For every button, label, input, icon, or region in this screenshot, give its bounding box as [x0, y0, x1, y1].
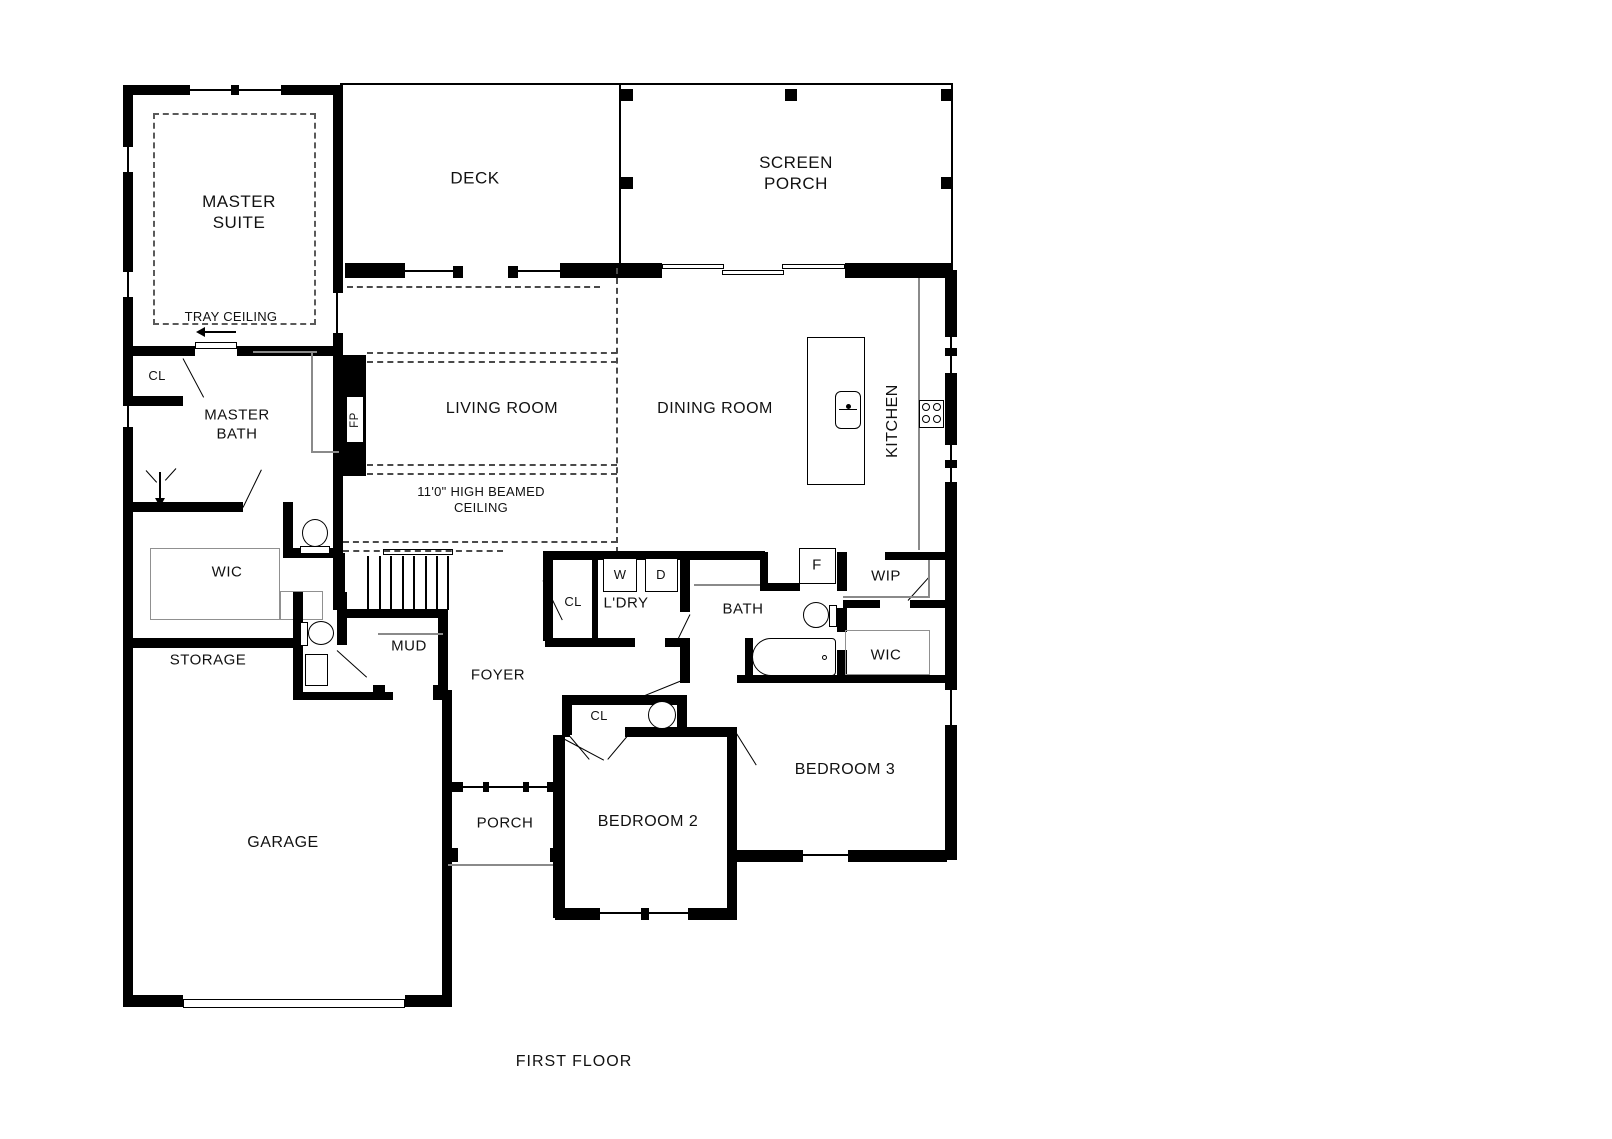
wall	[343, 609, 447, 618]
wall	[945, 482, 957, 612]
wall	[945, 270, 957, 337]
stair-tread	[379, 556, 381, 610]
tub-drain-icon	[822, 655, 827, 660]
room-label-closet-hall: CL	[564, 594, 581, 610]
door-leaf	[565, 739, 604, 761]
beam-ceiling-dashed	[367, 473, 617, 475]
window	[127, 147, 129, 172]
screen-porch-outline	[621, 83, 953, 85]
pantry-shelf	[928, 560, 930, 598]
deck-post-icon	[508, 266, 518, 278]
wall	[333, 85, 343, 293]
window	[190, 89, 231, 91]
room-label-storage: STORAGE	[170, 652, 247, 671]
wall	[133, 502, 243, 512]
room-label-master-suite: MASTER SUITE	[179, 191, 299, 234]
stair-tread	[402, 556, 404, 610]
closet-door-leaf	[607, 736, 627, 760]
sidelight	[463, 786, 483, 788]
toilet-tank-icon	[829, 605, 837, 627]
door-arrow-icon	[204, 331, 236, 333]
fireplace-label: FP	[348, 412, 362, 428]
stair-tread	[367, 556, 369, 610]
room-label-laundry: L'DRY	[603, 595, 648, 614]
shower-line	[146, 470, 157, 483]
window	[950, 690, 952, 725]
wall	[345, 263, 405, 278]
deck-outline	[340, 83, 621, 85]
porch-step	[448, 864, 563, 866]
porch-post-icon	[621, 177, 633, 189]
room-label-master-bath: MASTER BATH	[187, 406, 287, 444]
room-label-closet-master: CL	[148, 368, 165, 384]
wall	[760, 552, 768, 591]
garage-door	[183, 999, 405, 1008]
wall	[231, 85, 239, 95]
wall	[553, 735, 565, 918]
page-title: FIRST FLOOR	[516, 1052, 633, 1072]
appliance-label-dryer: D	[656, 567, 666, 583]
wall	[727, 727, 737, 918]
burner-icon	[922, 415, 930, 423]
door-leaf	[337, 650, 367, 678]
sliding-door-panel	[782, 264, 845, 269]
burner-icon	[933, 415, 941, 423]
wall	[433, 685, 448, 700]
stair-tread	[436, 556, 438, 610]
room-label-screen-porch: SCREEN PORCH	[736, 152, 856, 195]
wall	[945, 612, 957, 690]
room-label-deck: DECK	[450, 167, 499, 188]
wall	[592, 558, 598, 641]
annotation-beamed-ceiling: 11'0" HIGH BEAMED CEILING	[396, 484, 566, 517]
wall	[680, 645, 690, 683]
wall	[837, 552, 847, 591]
door-leaf	[734, 729, 757, 765]
pantry-shelf	[843, 596, 930, 598]
ceiling-break-dashed	[616, 268, 618, 553]
shower-arrow-icon	[159, 472, 161, 498]
shower-arrow-head-icon	[155, 498, 165, 507]
mud-bench	[378, 633, 443, 635]
room-label-wic-master: WIC	[212, 564, 243, 583]
porch-post-icon	[444, 848, 458, 862]
burner-icon	[933, 403, 941, 411]
porch-post-icon	[621, 89, 633, 101]
toilet-bowl-icon	[803, 602, 829, 628]
shower-line	[165, 468, 176, 481]
window	[239, 89, 281, 91]
porch-post-icon	[785, 89, 797, 101]
wall	[123, 427, 133, 640]
front-door	[489, 786, 523, 788]
wall	[438, 609, 448, 690]
room-label-wic-hall: WIC	[871, 647, 902, 666]
wall	[123, 346, 195, 356]
room-label-bath: BATH	[723, 601, 764, 620]
window	[950, 445, 952, 482]
wall	[680, 551, 690, 612]
room-label-porch: PORCH	[477, 815, 534, 834]
door-arrow-head-icon	[196, 327, 205, 337]
wall	[123, 85, 190, 95]
appliance-label-fridge: F	[812, 557, 822, 576]
wall	[737, 675, 947, 683]
wall	[768, 583, 800, 591]
wall	[885, 552, 947, 560]
wall	[293, 592, 303, 700]
screen-porch-outline-right	[951, 83, 953, 265]
sliding-door-panel	[722, 270, 784, 275]
wall	[442, 690, 452, 1000]
vanity-cabinet	[305, 654, 328, 686]
glass-door	[405, 270, 453, 272]
wall	[733, 850, 803, 862]
toilet-bowl-icon	[308, 621, 334, 645]
wall	[555, 908, 600, 920]
roof-line-dashed	[347, 286, 600, 288]
floor-plan: FP	[0, 0, 1612, 1139]
room-label-foyer: FOYER	[471, 667, 525, 686]
room-label-closet-bed2: CL	[590, 708, 607, 724]
wall	[848, 850, 947, 862]
wall	[123, 95, 133, 147]
room-label-living-room: LIVING ROOM	[446, 399, 558, 419]
room-label-garage: GARAGE	[247, 833, 318, 853]
annotation-tray-ceiling: TRAY CEILING	[185, 309, 278, 325]
wall	[843, 600, 880, 608]
vanity-counter	[311, 451, 339, 453]
wall	[333, 553, 345, 610]
window	[649, 912, 688, 914]
wall	[442, 782, 463, 792]
beam-ceiling-dashed	[367, 352, 617, 354]
room-label-kitchen: KITCHEN	[883, 384, 903, 458]
room-label-bedroom3: BEDROOM 3	[795, 760, 896, 780]
door-leaf	[243, 470, 262, 508]
wall	[845, 263, 953, 278]
toilet-tank-icon	[300, 622, 308, 646]
wall	[123, 640, 133, 1005]
porch-post-icon	[941, 177, 953, 189]
sidelight	[529, 786, 547, 788]
wall	[945, 373, 957, 445]
stair-tread	[447, 556, 449, 610]
bath-vanity	[694, 584, 760, 586]
room-label-bedroom2: BEDROOM 2	[598, 812, 699, 832]
toilet-bowl-icon	[302, 519, 328, 547]
wall	[123, 396, 183, 406]
beam-ceiling-dashed	[367, 361, 617, 363]
burner-icon	[922, 403, 930, 411]
wall	[837, 608, 847, 632]
wall	[910, 600, 947, 608]
wall	[641, 908, 649, 920]
island-sink-icon	[835, 391, 861, 429]
pocket-door	[195, 342, 237, 349]
vanity-counter	[311, 351, 313, 453]
stair-tread	[425, 556, 427, 610]
porch-post-icon	[941, 89, 953, 101]
wall	[945, 725, 957, 860]
window	[127, 272, 129, 297]
window	[803, 854, 848, 856]
appliance-label-washer: W	[614, 567, 627, 583]
corner-sink-icon	[648, 701, 676, 729]
sliding-door-panel	[662, 264, 724, 269]
room-label-mud: MUD	[391, 638, 427, 657]
closet-shelf-outline	[150, 548, 280, 620]
beam-ceiling-dashed	[343, 541, 617, 543]
beam-ceiling-dashed	[343, 550, 503, 552]
wall	[373, 685, 385, 698]
window	[336, 293, 338, 333]
glass-door	[518, 270, 560, 272]
room-label-dining-room: DINING ROOM	[657, 399, 773, 419]
wall	[123, 995, 183, 1007]
wall	[633, 727, 737, 737]
wall	[560, 263, 662, 278]
wall	[123, 172, 133, 272]
deck-post-icon	[453, 266, 463, 278]
room-label-wip: WIP	[871, 568, 901, 587]
wall	[123, 638, 296, 648]
toilet-tank-icon	[300, 546, 330, 554]
beam-ceiling-dashed	[367, 464, 617, 466]
sink-divider	[839, 409, 857, 410]
vanity-counter	[253, 351, 317, 353]
door-leaf	[183, 358, 205, 397]
faucet-icon	[846, 404, 851, 409]
window	[950, 337, 952, 373]
deck-screen-porch-divider	[619, 83, 621, 265]
stair-tread	[390, 556, 392, 610]
stair-tread	[413, 556, 415, 610]
window	[600, 912, 641, 914]
wall	[545, 638, 635, 647]
